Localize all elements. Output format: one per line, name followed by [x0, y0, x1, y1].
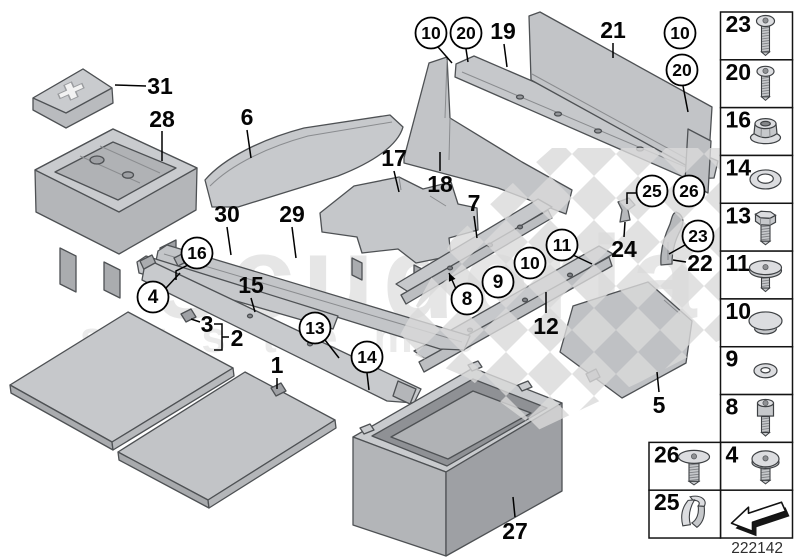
callout-19[interactable]: 19 [490, 18, 516, 67]
svg-text:4: 4 [148, 287, 159, 308]
svg-text:18: 18 [427, 171, 453, 197]
svg-text:27: 27 [502, 518, 528, 544]
svg-text:7: 7 [468, 190, 481, 216]
callout-circled-9[interactable]: 9 [483, 267, 514, 298]
svg-text:3: 3 [201, 311, 214, 337]
svg-text:21: 21 [600, 17, 626, 43]
legend-box-10[interactable]: 10 [721, 298, 793, 347]
legend-box-23[interactable]: 23 [721, 11, 793, 60]
svg-text:23: 23 [726, 11, 752, 37]
legend-box-8[interactable]: 8 [721, 394, 793, 443]
svg-text:20: 20 [456, 23, 476, 43]
legend-box-20[interactable]: 20 [721, 59, 793, 108]
callout-circled-10[interactable]: 10 [665, 18, 696, 49]
callout-circled-10[interactable]: 10 [515, 248, 546, 279]
svg-text:14: 14 [726, 154, 752, 180]
flange-nut-icon [751, 119, 781, 144]
svg-text:10: 10 [726, 298, 752, 324]
callout-2[interactable]: 2 [231, 325, 244, 351]
svg-text:26: 26 [679, 181, 699, 201]
legend-box-11[interactable]: 11 [721, 250, 793, 299]
svg-text:1: 1 [271, 352, 284, 378]
exploded-parts-diagram: scuderia s y s t e m s [0, 0, 800, 560]
svg-text:10: 10 [520, 253, 540, 273]
svg-text:13: 13 [305, 318, 325, 338]
callout-circled-26[interactable]: 26 [674, 176, 705, 207]
svg-text:12: 12 [533, 313, 559, 339]
callout-circled-20[interactable]: 20 [451, 18, 482, 63]
svg-text:13: 13 [726, 202, 752, 228]
legend-box-26[interactable]: 26 [649, 441, 721, 490]
svg-text:23: 23 [688, 226, 708, 246]
legend-box-9[interactable]: 9 [721, 346, 793, 395]
svg-text:25: 25 [642, 181, 662, 201]
callout-circled-10[interactable]: 10 [416, 18, 453, 64]
washer-small-icon [754, 364, 777, 378]
svg-text:20: 20 [726, 59, 752, 85]
parts-diagram-page: scuderia s y s t e m s [0, 0, 800, 560]
svg-text:6: 6 [241, 104, 254, 130]
svg-text:11: 11 [553, 235, 572, 255]
legend-box-4[interactable]: 4 [721, 441, 793, 490]
svg-text:5: 5 [653, 392, 666, 418]
svg-text:9: 9 [726, 346, 739, 372]
svg-text:14: 14 [357, 347, 377, 367]
svg-text:29: 29 [279, 201, 305, 227]
part-first-aid-kit-31[interactable] [33, 69, 113, 128]
svg-text:30: 30 [214, 201, 240, 227]
svg-text:9: 9 [493, 272, 504, 293]
svg-text:24: 24 [611, 236, 637, 262]
svg-text:26: 26 [654, 441, 680, 467]
svg-text:20: 20 [672, 60, 692, 80]
svg-text:28: 28 [149, 106, 175, 132]
svg-text:10: 10 [421, 23, 441, 43]
svg-text:2: 2 [231, 325, 244, 351]
svg-text:16: 16 [187, 243, 207, 263]
legend-box-direction-arrow[interactable] [721, 490, 793, 538]
svg-text:4: 4 [726, 441, 739, 467]
legend-box-14[interactable]: 14 [721, 154, 793, 203]
svg-text:17: 17 [381, 145, 407, 171]
svg-text:16: 16 [726, 107, 752, 133]
washer-large-icon [750, 170, 781, 189]
svg-text:11: 11 [726, 250, 751, 276]
svg-text:15: 15 [238, 272, 264, 298]
svg-text:31: 31 [147, 73, 173, 99]
svg-text:8: 8 [462, 289, 473, 310]
legend-box-16[interactable]: 16 [721, 107, 793, 156]
svg-text:22: 22 [687, 250, 713, 276]
legend-box-13[interactable]: 13 [721, 202, 793, 251]
callout-31[interactable]: 31 [115, 73, 173, 99]
callout-3[interactable]: 3 [201, 311, 214, 337]
svg-text:8: 8 [726, 394, 739, 420]
svg-text:10: 10 [670, 23, 690, 43]
legend-box-25[interactable]: 25 [649, 489, 721, 538]
drawing-number: 222142 [731, 540, 783, 557]
svg-text:25: 25 [654, 489, 680, 515]
svg-text:19: 19 [490, 18, 516, 44]
